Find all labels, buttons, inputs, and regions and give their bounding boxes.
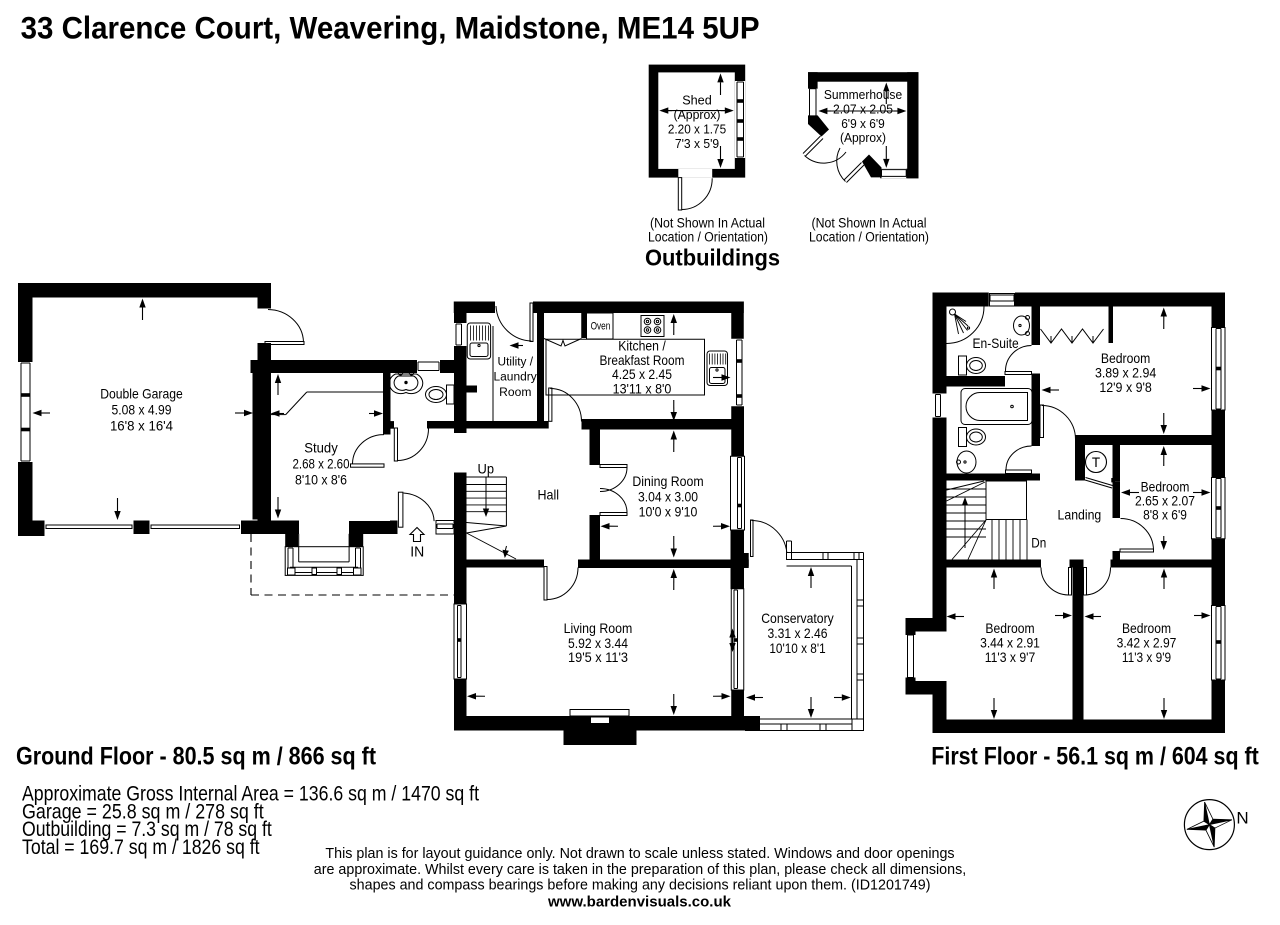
svg-text:Study: Study [304,440,338,456]
svg-text:Location / Orientation): Location / Orientation) [648,230,768,245]
svg-text:Dn: Dn [1031,535,1046,551]
svg-text:Bedroom: Bedroom [985,620,1034,636]
svg-text:First Floor - 56.1 sq m / 604: First Floor - 56.1 sq m / 604 sq ft [931,743,1259,771]
svg-text:Bedroom: Bedroom [1122,620,1171,636]
svg-text:8'10 x 8'6: 8'10 x 8'6 [295,472,347,488]
svg-text:2.20 x 1.75: 2.20 x 1.75 [668,122,726,137]
svg-text:Laundry: Laundry [494,372,537,384]
svg-text:shapes and compass bearings be: shapes and compass bearings before makin… [350,878,931,894]
svg-text:3.04 x 3.00: 3.04 x 3.00 [638,489,698,505]
svg-text:16'8 x 16'4: 16'8 x 16'4 [110,418,173,434]
svg-text:Ground Floor - 80.5 sq m / 866: Ground Floor - 80.5 sq m / 866 sq ft [16,743,377,771]
svg-text:8'8 x 6'9: 8'8 x 6'9 [1143,507,1187,523]
svg-text:10'10 x 8'1: 10'10 x 8'1 [769,640,825,656]
svg-text:19'5 x 11'3: 19'5 x 11'3 [568,649,628,665]
svg-text:5.08 x 4.99: 5.08 x 4.99 [112,402,172,418]
svg-text:Hall: Hall [538,487,560,503]
svg-text:This plan is for layout guidan: This plan is for layout guidance only. N… [325,846,954,862]
svg-text:Conservatory: Conservatory [761,610,834,626]
svg-text:6'9 x 6'9: 6'9 x 6'9 [841,116,885,131]
svg-text:(Not Shown In Actual: (Not Shown In Actual [650,216,765,231]
svg-text:33 Clarence Court, Weavering,: 33 Clarence Court, Weavering, Maidstone,… [21,10,760,46]
svg-text:(Not Shown In Actual: (Not Shown In Actual [812,216,927,231]
svg-text:3.44 x 2.91: 3.44 x 2.91 [980,635,1040,651]
svg-text:IN: IN [410,545,424,561]
svg-text:3.31 x 2.46: 3.31 x 2.46 [768,625,828,641]
svg-text:3.42 x 2.97: 3.42 x 2.97 [1117,635,1177,651]
svg-text:(Approx): (Approx) [840,130,886,145]
svg-text:Living Room: Living Room [564,620,633,636]
svg-text:Total = 169.7 sq m / 1826 sq f: Total = 169.7 sq m / 1826 sq ft [22,836,260,859]
svg-text:Utility /: Utility / [498,357,534,369]
svg-text:(Approx): (Approx) [674,107,721,122]
svg-text:10'0 x 9'10: 10'0 x 9'10 [639,504,698,520]
svg-text:Double Garage: Double Garage [100,386,183,402]
svg-text:7'3 x 5'9: 7'3 x 5'9 [675,136,719,151]
svg-text:En-Suite: En-Suite [972,335,1018,351]
svg-text:Oven: Oven [591,321,611,333]
svg-text:11'3 x 9'9: 11'3 x 9'9 [1122,649,1171,665]
svg-text:N: N [1236,809,1248,828]
svg-text:11'3 x 9'7: 11'3 x 9'7 [985,649,1036,665]
svg-text:2.68 x 2.60: 2.68 x 2.60 [293,456,350,472]
svg-text:Summerhouse: Summerhouse [824,87,902,102]
svg-text:13'11 x 8'0: 13'11 x 8'0 [613,380,672,396]
svg-text:Dining Room: Dining Room [632,473,703,489]
svg-text:Up: Up [478,461,495,477]
svg-text:T: T [1092,455,1100,470]
svg-text:are approximate. Whilst every: are approximate. Whilst every care is ta… [314,862,966,878]
svg-text:Outbuildings: Outbuildings [645,245,780,271]
svg-text:Location / Orientation): Location / Orientation) [809,230,929,245]
svg-text:Shed: Shed [682,93,712,108]
svg-text:www.bardenvisuals.co.uk: www.bardenvisuals.co.uk [547,895,732,911]
svg-text:Landing: Landing [1058,507,1102,523]
svg-text:12'9 x 9'8: 12'9 x 9'8 [1099,379,1152,395]
svg-text:2.07 x 2.05: 2.07 x 2.05 [833,101,893,116]
svg-text:Room: Room [499,387,531,399]
